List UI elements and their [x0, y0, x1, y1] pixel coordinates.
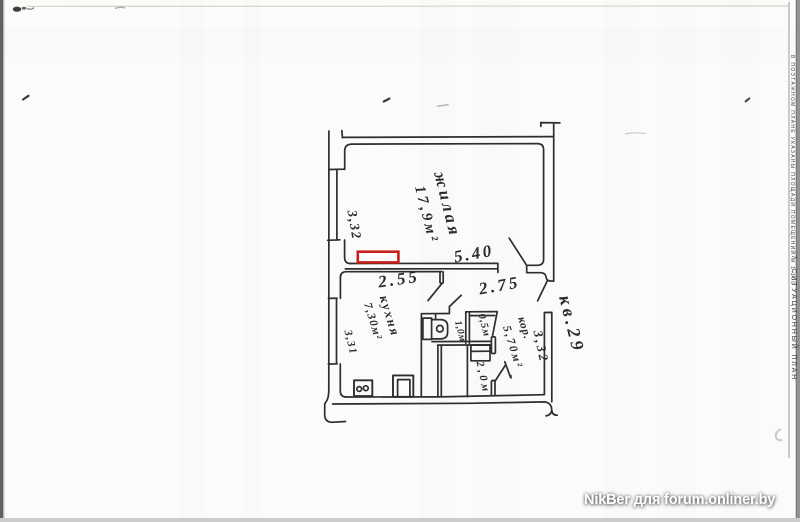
svg-text:NikBer для forum.onliner.by: NikBer для forum.onliner.by [584, 492, 775, 508]
svg-text:В ПОЭТАЖНОМ ПЛАНЕ УКАЗАНЫ ПЛОЩ: В ПОЭТАЖНОМ ПЛАНЕ УКАЗАНЫ ПЛОЩАДИ ПОМЕЩЕ… [789, 55, 797, 285]
svg-text:7. СИТУАЦИОННЫЙ ПЛАН: 7. СИТУАЦИОННЫЙ ПЛАН [790, 255, 799, 381]
